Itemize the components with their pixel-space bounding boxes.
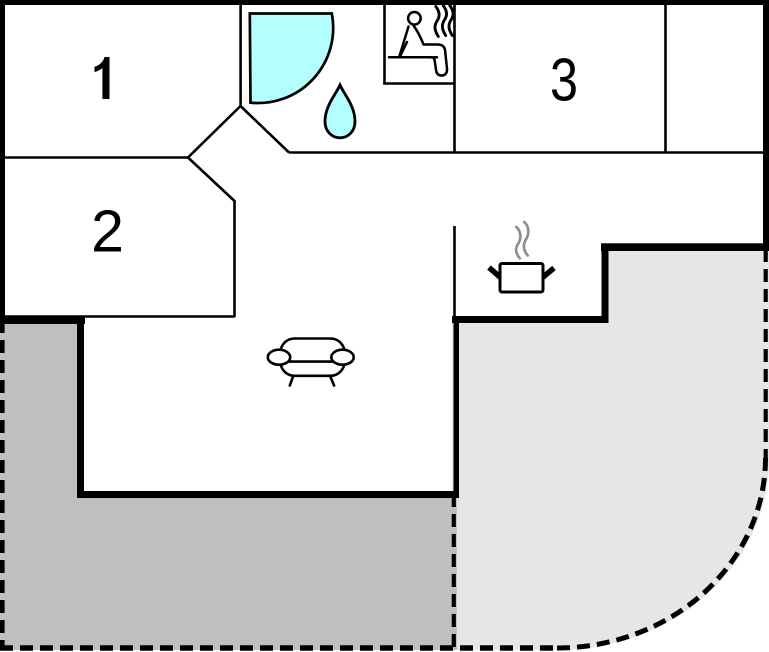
svg-text:3: 3 [550, 45, 578, 113]
svg-text:2: 2 [91, 198, 124, 264]
